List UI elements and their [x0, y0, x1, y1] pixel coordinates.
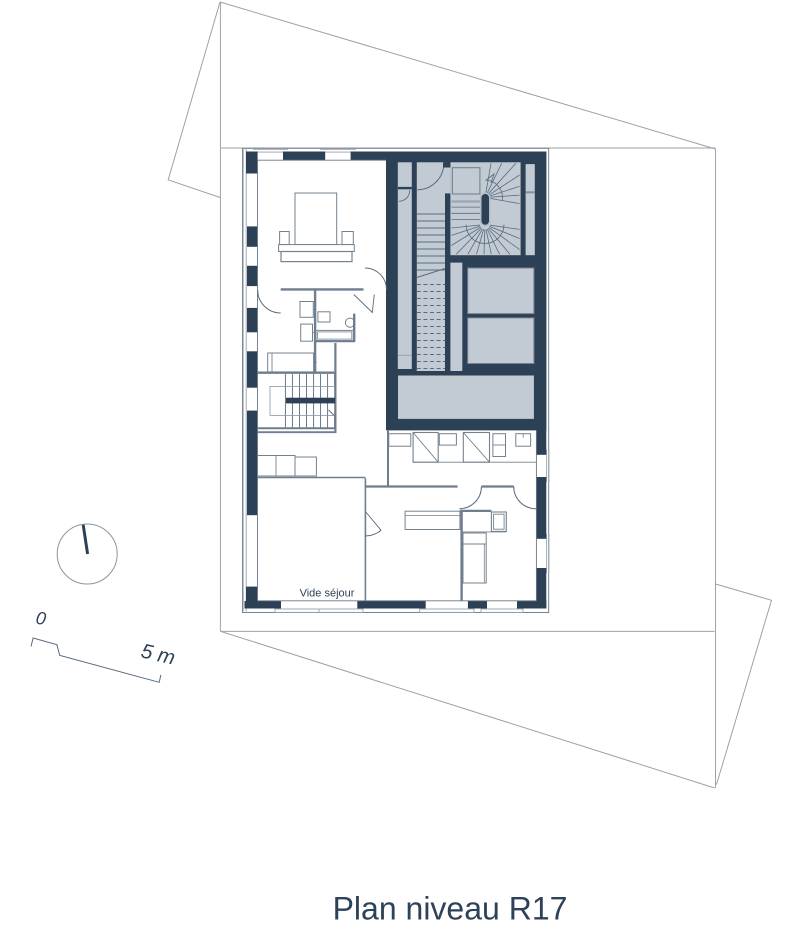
svg-text:Plan niveau R17: Plan niveau R17 — [333, 891, 568, 922]
svg-text:Vide séjour: Vide séjour — [300, 588, 355, 600]
